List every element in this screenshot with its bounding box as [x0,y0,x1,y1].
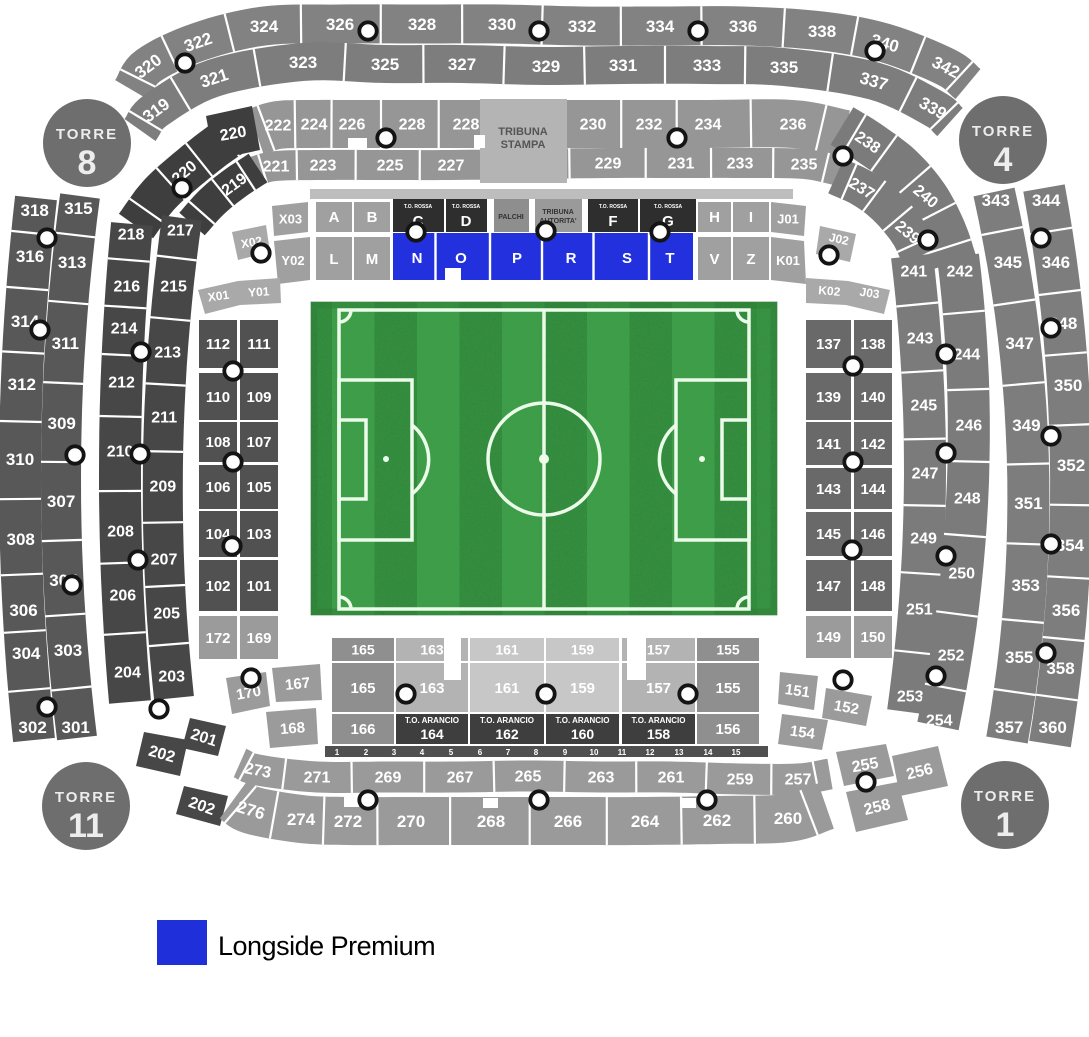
svg-text:330: 330 [488,15,516,34]
svg-text:229: 229 [595,156,622,173]
svg-text:212: 212 [108,375,135,392]
svg-text:Longside Premium: Longside Premium [218,931,435,961]
svg-text:332: 332 [568,17,596,36]
svg-text:11: 11 [618,748,627,757]
svg-text:221: 221 [263,159,290,176]
svg-text:TORRE: TORRE [974,788,1036,805]
svg-text:234: 234 [695,117,722,134]
svg-text:109: 109 [246,389,271,406]
svg-text:8: 8 [534,748,539,757]
svg-text:308: 308 [7,530,35,549]
svg-text:331: 331 [609,56,637,75]
svg-text:231: 231 [668,156,695,173]
svg-text:159: 159 [571,641,595,657]
svg-text:268: 268 [477,812,505,831]
svg-text:148: 148 [860,578,885,595]
svg-text:12: 12 [646,748,655,757]
svg-text:245: 245 [910,398,937,415]
svg-text:242: 242 [946,264,973,281]
svg-text:T.O. ARANCIO: T.O. ARANCIO [405,716,459,725]
svg-text:15: 15 [732,748,741,757]
svg-text:T.O. ROSSA: T.O. ROSSA [654,204,683,210]
svg-text:316: 316 [16,247,44,266]
svg-text:274: 274 [287,810,316,829]
svg-text:232: 232 [636,117,663,134]
svg-text:357: 357 [995,718,1023,737]
svg-text:167: 167 [284,674,311,694]
svg-text:Y02: Y02 [281,253,304,268]
svg-text:207: 207 [151,552,178,569]
svg-text:PALCHI: PALCHI [498,214,524,221]
svg-text:254: 254 [926,713,953,730]
svg-text:6: 6 [478,748,483,757]
svg-text:334: 334 [646,17,675,36]
svg-text:261: 261 [658,770,685,787]
svg-text:T: T [665,250,674,267]
svg-text:155: 155 [715,680,740,697]
svg-text:270: 270 [397,812,425,831]
svg-text:B: B [367,209,378,226]
svg-text:347: 347 [1005,334,1033,353]
svg-text:244: 244 [953,347,980,364]
svg-text:226: 226 [339,117,366,134]
svg-text:230: 230 [580,117,607,134]
svg-text:353: 353 [1012,576,1040,595]
svg-text:A: A [329,209,340,226]
svg-text:352: 352 [1057,456,1085,475]
svg-text:158: 158 [647,726,671,742]
svg-text:243: 243 [907,331,934,348]
svg-text:215: 215 [160,279,187,296]
svg-text:137: 137 [816,336,841,353]
svg-text:302: 302 [18,718,46,737]
svg-text:1: 1 [335,748,340,757]
svg-text:326: 326 [326,15,354,34]
svg-text:146: 146 [860,526,885,543]
svg-text:218: 218 [118,227,145,244]
svg-text:141: 141 [816,436,841,453]
svg-text:4: 4 [994,141,1013,179]
svg-text:111: 111 [247,336,270,353]
svg-text:259: 259 [727,772,754,789]
svg-text:263: 263 [588,770,615,787]
svg-text:203: 203 [158,669,185,686]
svg-text:J03: J03 [859,285,881,302]
svg-text:TORRE: TORRE [972,123,1034,140]
svg-text:9: 9 [563,748,568,757]
svg-text:210: 210 [107,444,134,461]
svg-text:T.O. ARANCIO: T.O. ARANCIO [480,716,534,725]
svg-text:TORRE: TORRE [55,789,117,806]
svg-text:3: 3 [392,748,397,757]
svg-text:311: 311 [52,334,79,353]
svg-text:214: 214 [111,321,138,338]
svg-text:318: 318 [21,201,49,220]
svg-text:327: 327 [448,55,476,74]
svg-text:Z: Z [746,251,755,268]
svg-text:345: 345 [994,253,1022,272]
svg-text:X01: X01 [207,288,230,305]
svg-text:213: 213 [154,345,181,362]
svg-text:335: 335 [770,58,798,77]
svg-text:M: M [366,251,379,268]
svg-text:164: 164 [420,726,444,742]
svg-text:172: 172 [205,630,230,647]
svg-text:307: 307 [47,492,75,511]
svg-text:269: 269 [375,770,402,787]
svg-text:165: 165 [351,641,375,657]
svg-text:355: 355 [1005,648,1033,667]
svg-text:324: 324 [250,17,279,36]
svg-text:10: 10 [590,748,599,757]
svg-text:154: 154 [789,723,817,743]
svg-text:166: 166 [350,721,375,738]
svg-text:310: 310 [6,450,34,469]
svg-text:211: 211 [151,410,177,427]
svg-text:343: 343 [982,191,1010,210]
svg-text:303: 303 [54,641,82,660]
svg-text:204: 204 [114,665,141,682]
svg-text:159: 159 [570,680,595,697]
svg-text:313: 313 [58,253,86,272]
svg-text:T.O. ROSSA: T.O. ROSSA [599,204,628,210]
svg-text:252: 252 [938,648,965,665]
svg-text:349: 349 [1012,416,1040,435]
svg-text:O: O [455,250,467,267]
svg-text:108: 108 [205,434,230,451]
svg-text:157: 157 [647,641,671,657]
svg-text:338: 338 [808,22,836,41]
svg-text:328: 328 [408,15,436,34]
svg-text:344: 344 [1032,191,1061,210]
svg-text:138: 138 [860,336,885,353]
svg-text:106: 106 [205,479,230,496]
svg-text:STAMPA: STAMPA [501,139,546,151]
svg-text:112: 112 [206,336,230,353]
svg-text:8: 8 [78,144,97,182]
svg-text:T.O. ARANCIO: T.O. ARANCIO [632,716,686,725]
svg-text:161: 161 [495,641,519,657]
svg-text:312: 312 [8,375,36,394]
svg-text:TRIBUNA: TRIBUNA [542,209,574,216]
svg-text:T.O. ROSSA: T.O. ROSSA [452,204,481,210]
svg-text:169: 169 [246,630,271,647]
svg-text:260: 260 [774,809,802,828]
svg-text:155: 155 [716,641,740,657]
svg-text:K02: K02 [818,283,841,299]
svg-text:304: 304 [12,644,41,663]
svg-text:168: 168 [279,719,305,738]
svg-text:R: R [566,250,577,267]
svg-text:224: 224 [301,117,328,134]
svg-text:222: 222 [265,118,292,135]
svg-text:11: 11 [68,807,104,845]
svg-text:161: 161 [494,680,519,697]
svg-text:306: 306 [9,601,37,620]
svg-text:145: 145 [816,526,841,543]
svg-text:205: 205 [153,606,180,623]
svg-text:147: 147 [816,578,841,595]
svg-text:209: 209 [149,479,176,496]
svg-text:216: 216 [113,279,140,296]
svg-text:L: L [329,251,338,268]
svg-text:266: 266 [554,812,582,831]
svg-text:I: I [749,209,753,226]
svg-text:143: 143 [816,481,841,498]
svg-text:X03: X03 [279,212,302,227]
svg-text:K01: K01 [776,253,800,268]
svg-text:105: 105 [246,479,271,496]
svg-text:163: 163 [420,641,444,657]
svg-text:235: 235 [791,157,818,174]
svg-text:247: 247 [912,466,939,483]
svg-text:110: 110 [206,389,230,406]
svg-text:271: 271 [304,770,331,787]
svg-text:102: 102 [205,578,230,595]
svg-text:144: 144 [860,481,886,498]
svg-text:262: 262 [703,811,731,830]
svg-text:236: 236 [780,117,807,134]
svg-text:233: 233 [727,156,754,173]
svg-text:107: 107 [246,434,271,451]
svg-text:356: 356 [1052,601,1080,620]
svg-text:257: 257 [785,772,812,789]
svg-text:151: 151 [784,681,811,701]
svg-text:163: 163 [419,680,444,697]
svg-text:150: 150 [860,629,885,646]
svg-text:5: 5 [449,748,454,757]
svg-text:7: 7 [506,748,511,757]
svg-text:323: 323 [289,53,317,72]
svg-text:333: 333 [693,56,721,75]
svg-text:248: 248 [954,491,981,508]
svg-text:165: 165 [350,680,375,697]
svg-text:149: 149 [816,629,841,646]
svg-text:225: 225 [377,158,404,175]
svg-text:T.O. ARANCIO: T.O. ARANCIO [556,716,610,725]
svg-text:14: 14 [704,748,713,757]
svg-text:228: 228 [399,117,426,134]
svg-text:217: 217 [167,223,194,240]
svg-text:N: N [412,250,423,267]
svg-text:241: 241 [900,264,927,281]
svg-text:103: 103 [246,526,271,543]
svg-text:TRIBUNA: TRIBUNA [498,126,548,138]
svg-text:208: 208 [107,524,134,541]
svg-text:336: 336 [729,17,757,36]
svg-text:265: 265 [515,769,542,786]
svg-text:157: 157 [646,680,671,697]
svg-text:246: 246 [955,418,982,435]
svg-text:J01: J01 [777,212,799,227]
svg-text:162: 162 [495,726,519,742]
svg-text:315: 315 [64,199,92,218]
svg-text:227: 227 [438,158,465,175]
svg-text:309: 309 [48,414,76,433]
svg-text:D: D [461,213,472,230]
svg-text:329: 329 [532,57,560,76]
svg-text:301: 301 [62,718,90,737]
svg-text:139: 139 [816,389,841,406]
svg-text:P: P [512,250,522,267]
svg-text:T.O. ROSSA: T.O. ROSSA [404,204,433,210]
svg-text:H: H [709,209,720,226]
svg-text:206: 206 [109,588,136,605]
svg-text:264: 264 [631,812,660,831]
svg-text:2: 2 [364,748,369,757]
svg-text:249: 249 [910,531,937,548]
svg-text:1: 1 [996,806,1015,844]
svg-text:272: 272 [334,812,362,831]
svg-text:360: 360 [1039,718,1067,737]
svg-text:251: 251 [906,602,933,619]
svg-text:140: 140 [860,389,885,406]
svg-text:223: 223 [310,158,337,175]
svg-text:253: 253 [897,689,924,706]
svg-text:V: V [709,251,719,268]
svg-text:F: F [608,213,617,230]
svg-text:350: 350 [1054,376,1082,395]
svg-text:TORRE: TORRE [56,126,118,143]
svg-text:228: 228 [453,117,480,134]
svg-text:325: 325 [371,55,399,74]
svg-text:351: 351 [1014,494,1042,513]
svg-text:101: 101 [246,578,271,595]
svg-text:156: 156 [715,721,740,738]
svg-text:4: 4 [420,748,425,757]
svg-text:160: 160 [571,726,595,742]
svg-text:142: 142 [860,436,885,453]
svg-text:S: S [622,250,632,267]
svg-text:250: 250 [948,566,975,583]
svg-text:267: 267 [447,770,474,787]
svg-text:13: 13 [675,748,684,757]
svg-text:Y01: Y01 [248,284,271,299]
svg-text:346: 346 [1042,253,1070,272]
